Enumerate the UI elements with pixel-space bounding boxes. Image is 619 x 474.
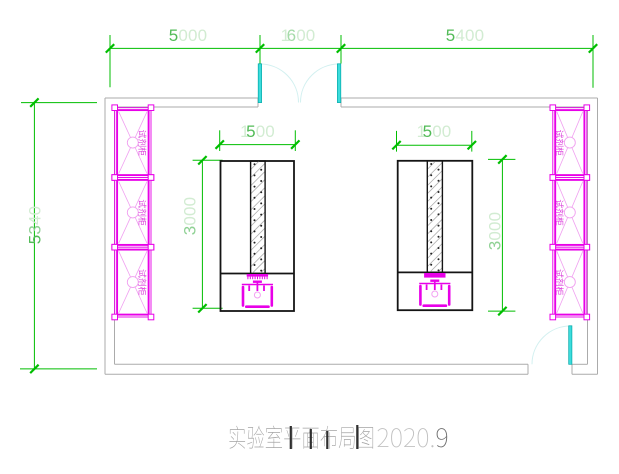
svg-text:3: 3 <box>485 241 504 250</box>
svg-text:5: 5 <box>446 26 455 45</box>
svg-text:3: 3 <box>26 225 45 234</box>
svg-text:5: 5 <box>246 122 255 141</box>
svg-text:0: 0 <box>306 26 315 45</box>
svg-text:0: 0 <box>485 222 504 231</box>
svg-text:6: 6 <box>287 26 296 45</box>
svg-text:0: 0 <box>265 122 274 141</box>
svg-text:0: 0 <box>442 122 451 141</box>
svg-text:4: 4 <box>26 216 45 225</box>
svg-text:0: 0 <box>26 206 45 215</box>
svg-text:0: 0 <box>198 26 207 45</box>
svg-text:0: 0 <box>181 197 200 206</box>
svg-text:0: 0 <box>432 122 441 141</box>
svg-text:0: 0 <box>465 26 474 45</box>
svg-text:0: 0 <box>178 26 187 45</box>
svg-text:3: 3 <box>181 226 200 235</box>
svg-text:5: 5 <box>169 26 178 45</box>
svg-text:0: 0 <box>256 122 265 141</box>
svg-text:0: 0 <box>188 26 197 45</box>
svg-text:0: 0 <box>296 26 305 45</box>
svg-text:0: 0 <box>485 212 504 221</box>
svg-text:0: 0 <box>181 216 200 225</box>
svg-text:5: 5 <box>423 122 432 141</box>
svg-text:0: 0 <box>475 26 484 45</box>
svg-text:5: 5 <box>26 235 45 244</box>
svg-text:0: 0 <box>181 207 200 216</box>
svg-text:0: 0 <box>485 231 504 240</box>
svg-text:4: 4 <box>455 26 464 45</box>
